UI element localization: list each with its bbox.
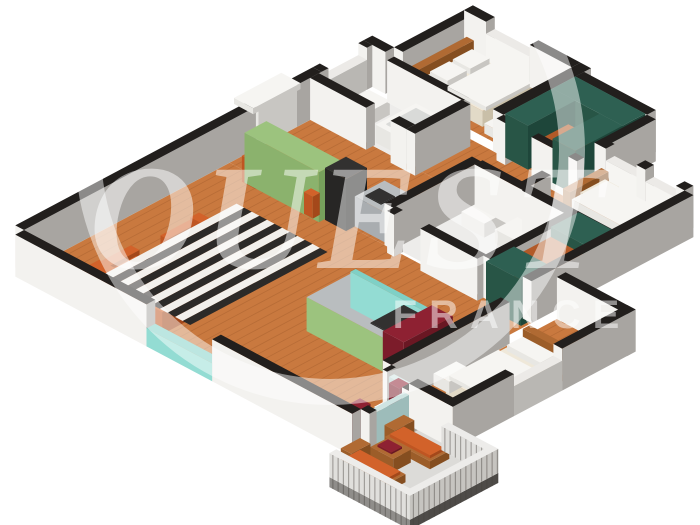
- watermark-text-big: OUEST: [89, 135, 611, 301]
- watermark-text-sub: FRANCE: [393, 293, 632, 337]
- floorplan-3d-page: OUEST FRANCE: [0, 0, 700, 525]
- floorplan-3d-render: OUEST FRANCE: [0, 0, 700, 525]
- wall-nw-bath-b-se: [367, 45, 372, 90]
